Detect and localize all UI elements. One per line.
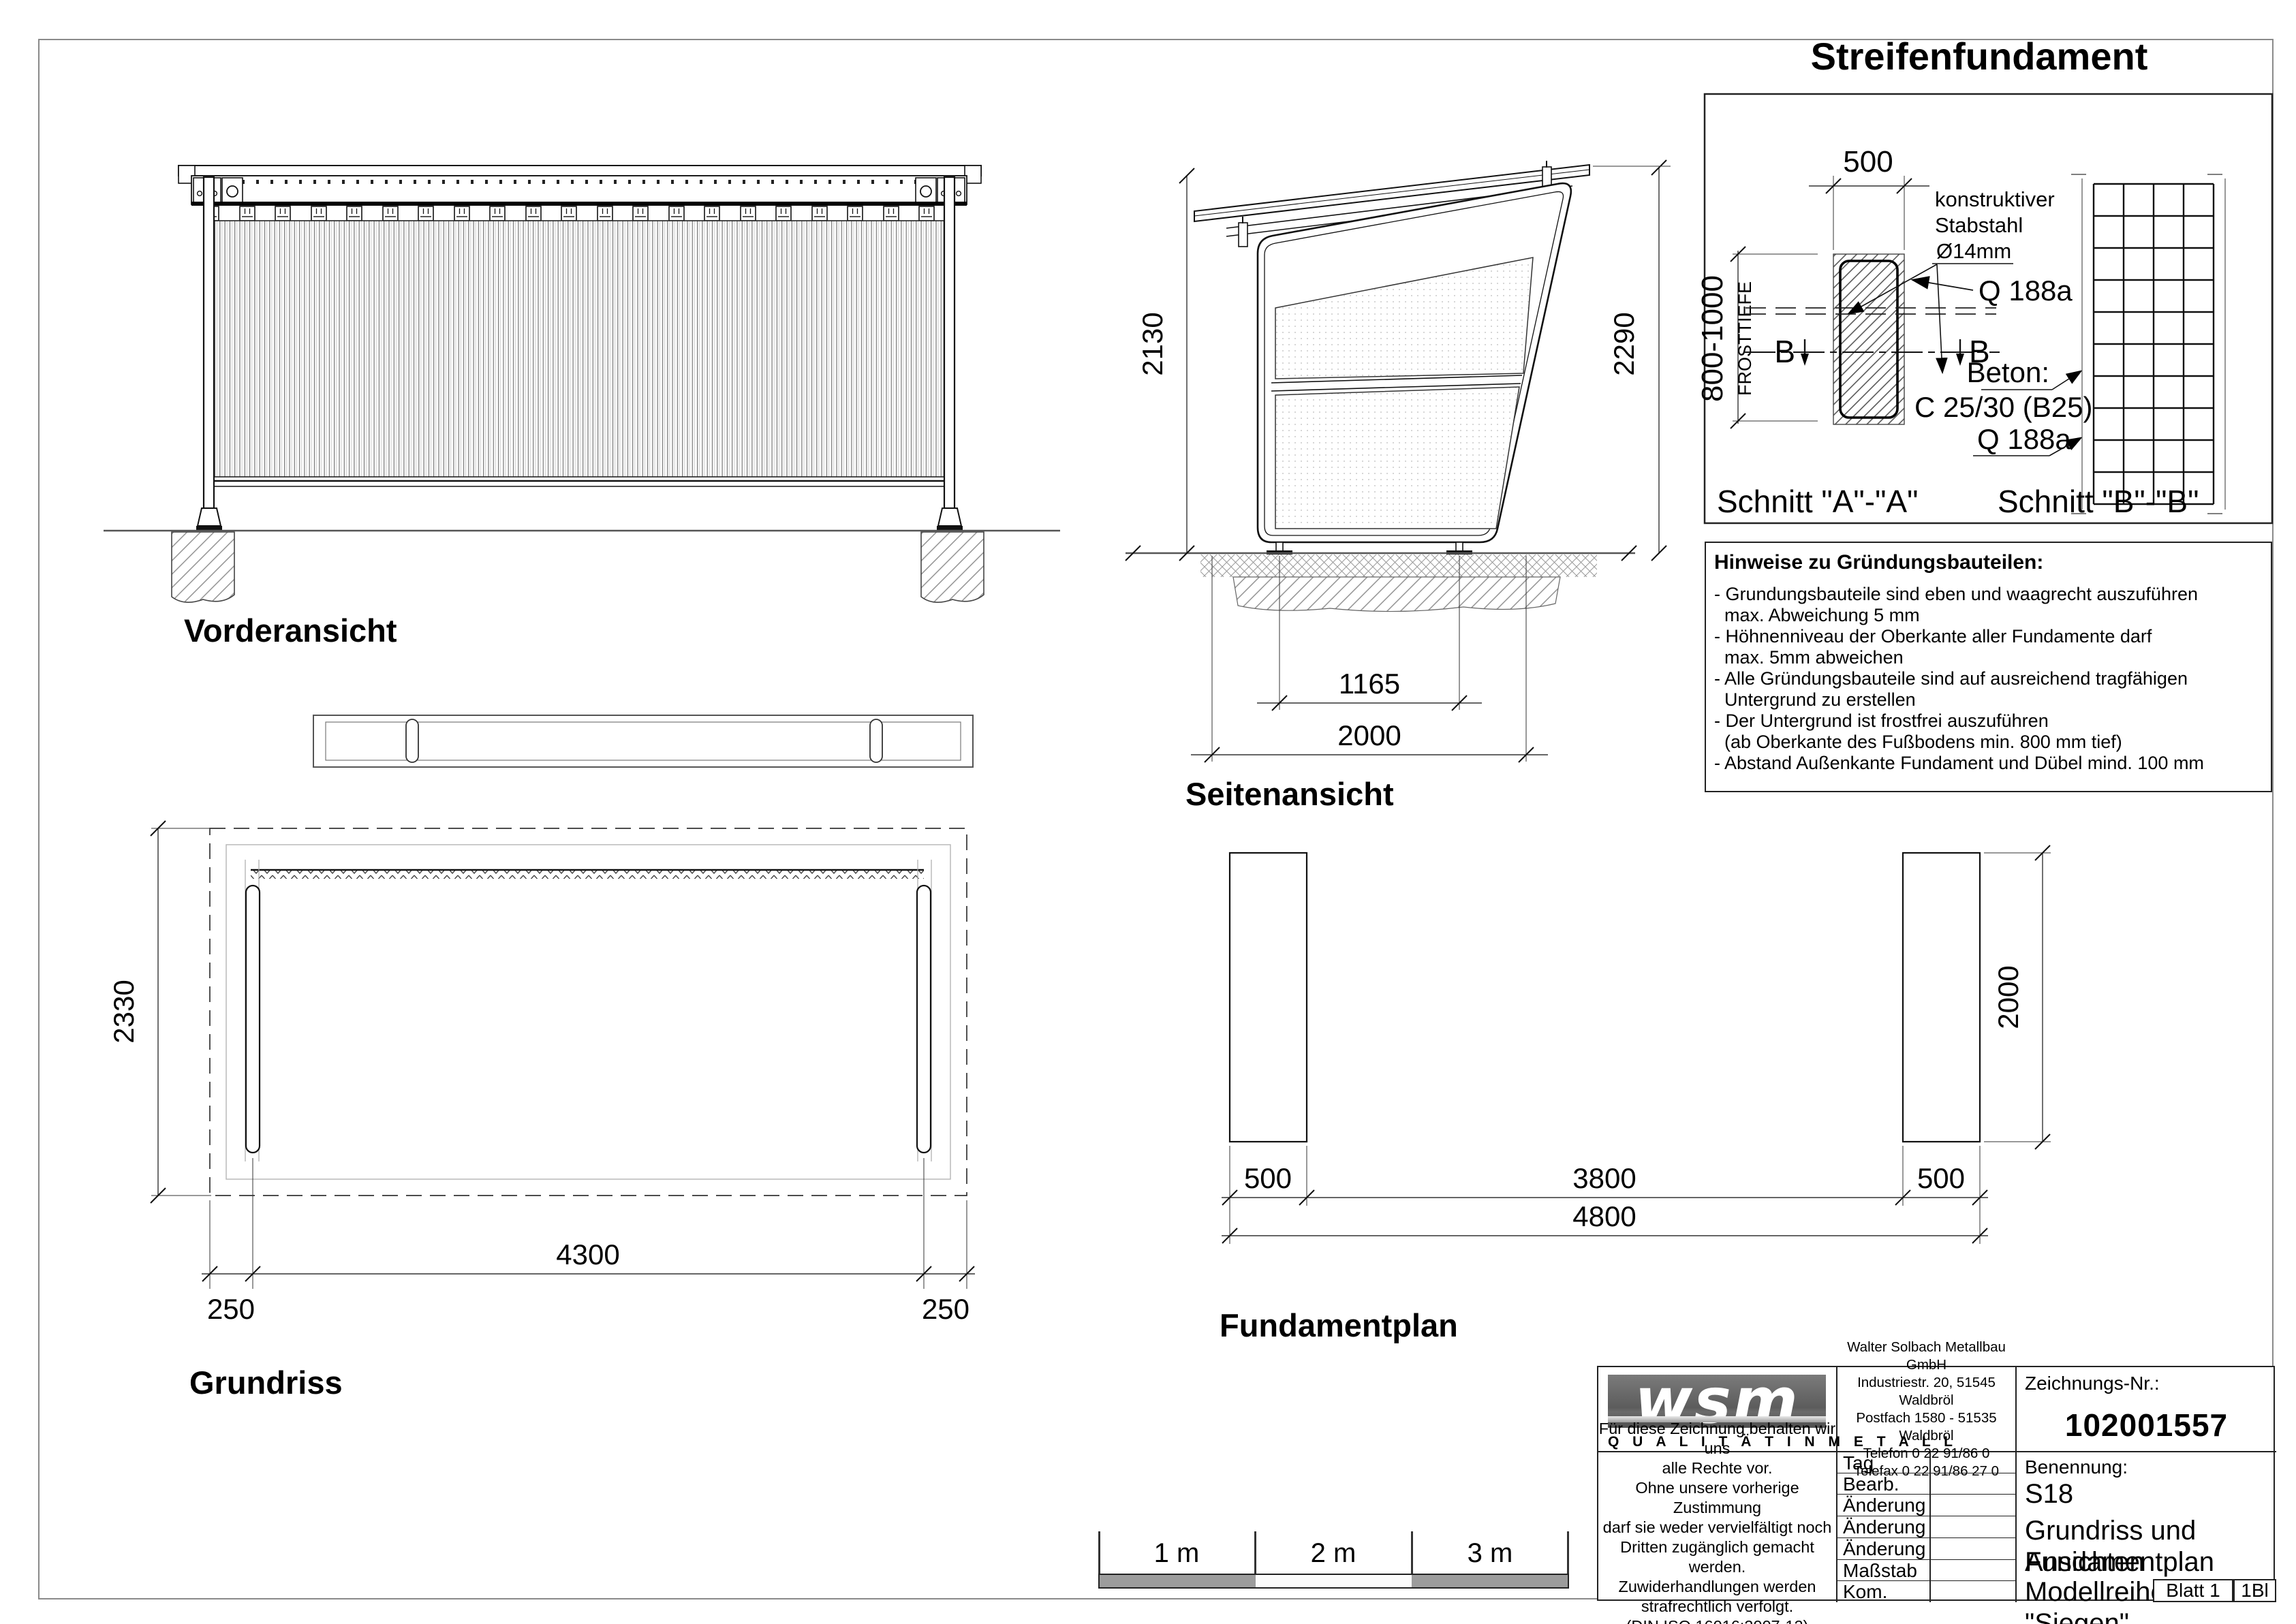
foundation-notes-box: Hinweise zu Gründungsbauteilen: - Grundu…: [1705, 542, 2272, 792]
scale-label-2m: 2 m: [1255, 1538, 1412, 1569]
corrugated-wall: [206, 221, 952, 477]
notes-line: - Abstand Außenkante Fundament und Dübel…: [1714, 753, 2263, 774]
detail-box: [1705, 94, 2272, 523]
revision-table: Tag Bearb. Änderung Änderung Änderung Ma…: [1837, 1452, 2017, 1602]
copyright-line: Ohne unsere vorherige Zustimmung: [1598, 1478, 1836, 1518]
notes-line: - Der Untergrund ist frostfrei auszuführ…: [1714, 710, 2263, 732]
copyright-line: Zuwiderhandlungen werden: [1598, 1577, 1836, 1597]
notes-line: - Grundungsbauteile sind eben und waagre…: [1714, 584, 2263, 605]
side-ground-hatch: [1200, 555, 1597, 577]
fplan-dim-500-right: 500: [1917, 1162, 1965, 1194]
row-aenderung-1: Änderung: [1837, 1495, 1929, 1516]
scale-bar: 1 m 2 m 3 m: [1098, 1531, 1569, 1589]
notes-line: Untergrund zu erstellen: [1714, 689, 2263, 710]
foundation-plan-drawing: 2000 500 3800 500 4800 Fundamentplan: [1220, 845, 2051, 1343]
copyright-line: (DIN ISO 16016:2007-12): [1598, 1617, 1836, 1624]
beton-grade: C 25/30 (B25): [1914, 391, 2092, 423]
notes-line: (ab Oberkante des Fußbodens min. 800 mm …: [1714, 732, 2263, 753]
row-kom: Kom.: [1837, 1581, 1929, 1602]
row-bearb: Bearb.: [1837, 1473, 1929, 1495]
company-line: Walter Solbach Metallbau GmbH: [1837, 1339, 2015, 1374]
section-a-label: Schnitt "A"-"A": [1717, 484, 1918, 519]
mesh-label-bottom: Q 188a: [1977, 423, 2071, 455]
side-view-drawing: 2130 2290 1165 2000 Seitenansicht: [1126, 160, 1671, 812]
side-mesh-panel-lower: [1275, 387, 1519, 529]
notes-line: - Höhnenniveau der Oberkante aller Funda…: [1714, 626, 2263, 647]
plan-dim-4300: 4300: [556, 1238, 619, 1270]
row-aenderung-2: Änderung: [1837, 1516, 1929, 1538]
side-view-label: Seitenansicht: [1185, 776, 1394, 812]
drawing-number: 102001557: [2017, 1407, 2276, 1443]
foundation-strip-right: [1903, 853, 1980, 1142]
plan-view-label: Grundriss: [189, 1364, 343, 1401]
notes-line: - Alle Gründungsbauteile sind auf ausrei…: [1714, 668, 2263, 689]
section-b-label: Schnitt "B"-"B": [1998, 484, 2199, 519]
sheet-number: Blatt 1: [2153, 1579, 2233, 1602]
copyright-line: alle Rechte vor.: [1598, 1458, 1836, 1478]
frost-depth-value: 800-1000: [1696, 275, 1729, 402]
drawing-sheet: Vorderansicht: [0, 0, 2296, 1624]
front-footing-left: [172, 532, 234, 602]
side-dim-1165: 1165: [1339, 668, 1400, 700]
front-view-label: Vorderansicht: [184, 612, 397, 649]
rebar-note-line1: konstruktiver: [1935, 187, 2055, 211]
rebar-note-line2: Stabstahl: [1935, 213, 2023, 237]
notes-line: max. Abweichung 5 mm: [1714, 605, 2263, 626]
drawing-number-label: Zeichnungs-Nr.:: [2025, 1373, 2160, 1394]
designation-line: S18: [2025, 1478, 2073, 1510]
fplan-dim-2000: 2000: [1992, 965, 2024, 1029]
designation-line: Fundamentplan: [2025, 1546, 2214, 1578]
plan-roof-outline: [210, 828, 967, 1196]
row-tag: Tag: [1837, 1452, 1929, 1473]
fplan-dim-4800: 4800: [1572, 1200, 1636, 1232]
mesh-grid: [2094, 184, 2214, 504]
company-line: Postfach 1580 - 51535 Waldbröl: [1837, 1409, 2015, 1445]
scale-segment: [1256, 1575, 1412, 1587]
company-line: Industriestr. 20, 51545 Waldbröl: [1837, 1374, 2015, 1409]
strip-foundation-detail: 500 800-1000 FROSTTIEFE B B konstruktive…: [1696, 94, 2272, 523]
row-massstab: Maßstab: [1837, 1560, 1929, 1581]
foundation-strip-left: [1230, 853, 1307, 1142]
notes-title: Hinweise zu Gründungsbauteilen:: [1714, 551, 2263, 574]
rebar-note-line3: Ø14mm: [1936, 239, 2011, 263]
copyright-line: Für diese Zeichnung behalten wir uns: [1598, 1419, 1836, 1458]
copyright-note: Für diese Zeichnung behalten wir uns all…: [1598, 1452, 1837, 1602]
foundation-plan-label: Fundamentplan: [1220, 1307, 1458, 1343]
title-block: wsm Q U A L I T Ä T I N M E T A L L Walt…: [1597, 1366, 2275, 1601]
row-aenderung-3: Änderung: [1837, 1538, 1929, 1560]
copyright-line: darf sie weder vervielfältigt noch: [1598, 1518, 1836, 1537]
side-dim-2000: 2000: [1337, 719, 1401, 751]
sheet-count: 1Bl: [2233, 1579, 2276, 1602]
concrete-section: [1833, 254, 1904, 424]
detail-title: Streifenfundament: [1741, 34, 2218, 78]
scale-segment: [1100, 1575, 1256, 1587]
front-view-drawing: Vorderansicht: [104, 166, 1060, 649]
notes-line: max. 5mm abweichen: [1714, 647, 2263, 668]
copyright-line: strafrechtlich verfolgt.: [1598, 1597, 1836, 1617]
frost-depth-label: FROSTTIEFE: [1735, 281, 1755, 396]
company-address: Walter Solbach Metallbau GmbH Industries…: [1837, 1367, 2017, 1452]
scale-label-1m: 1 m: [1098, 1538, 1255, 1569]
fplan-dim-500-left: 500: [1244, 1162, 1292, 1194]
detail-dim-500: 500: [1843, 145, 1893, 178]
plan-dim-2330: 2330: [108, 980, 140, 1043]
scale-label-3m: 3 m: [1412, 1538, 1568, 1569]
roof-clamp-row: [204, 206, 934, 221]
mesh-label-top: Q 188a: [1979, 275, 2073, 307]
front-footing-right: [921, 532, 984, 602]
plan-dim-250-left: 250: [207, 1293, 255, 1325]
beton-label: Beton:: [1967, 356, 2049, 388]
side-dim-2290: 2290: [1608, 312, 1640, 375]
designation-label: Benennung:: [2025, 1456, 2128, 1478]
side-dim-2130: 2130: [1136, 312, 1168, 375]
fplan-dim-3800: 3800: [1572, 1162, 1636, 1194]
plan-dim-250-right: 250: [922, 1293, 969, 1325]
plan-view-drawing: 2330 4300 250 250 Grundriss: [108, 715, 975, 1401]
scale-segment: [1412, 1575, 1568, 1587]
copyright-line: Dritten zugänglich gemacht werden.: [1598, 1537, 1836, 1577]
section-marker-b-left: B: [1774, 334, 1795, 369]
